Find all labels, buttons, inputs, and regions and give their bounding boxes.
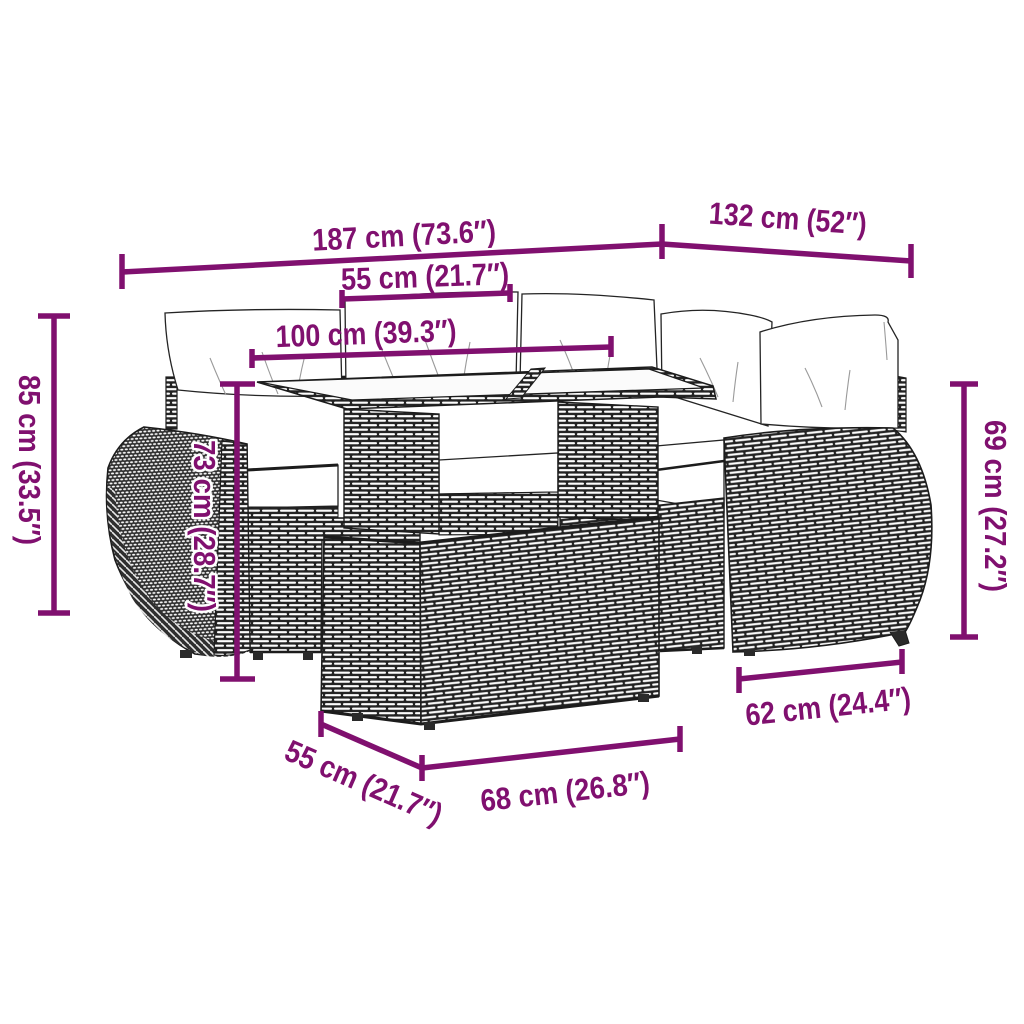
- svg-text:68 cm (26.8″): 68 cm (26.8″): [479, 765, 652, 819]
- svg-text:55 cm (21.7″): 55 cm (21.7″): [340, 256, 509, 297]
- svg-text:85 cm (33.5″): 85 cm (33.5″): [12, 375, 47, 545]
- svg-text:69 cm (27.2″): 69 cm (27.2″): [978, 420, 1013, 592]
- svg-text:62 cm (24.4″): 62 cm (24.4″): [744, 680, 913, 732]
- svg-text:187 cm (73.6″): 187 cm (73.6″): [311, 213, 497, 258]
- svg-text:73 cm (28.7″): 73 cm (28.7″): [187, 440, 222, 612]
- svg-text:100 cm (39.3″): 100 cm (39.3″): [275, 313, 457, 354]
- svg-text:55 cm (21.7″): 55 cm (21.7″): [280, 733, 448, 832]
- svg-text:132 cm (52″): 132 cm (52″): [708, 196, 868, 242]
